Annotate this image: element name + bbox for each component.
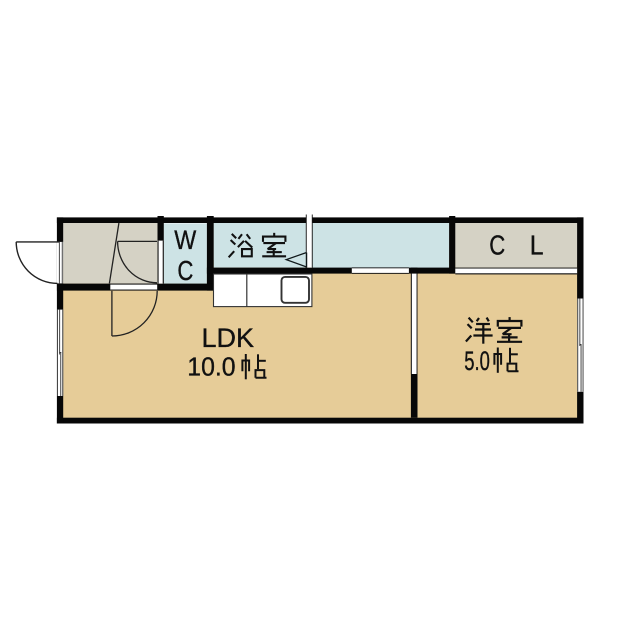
svg-text:W: W: [174, 225, 196, 255]
svg-text:10.0: 10.0: [187, 354, 235, 382]
svg-text:C: C: [177, 255, 193, 286]
svg-text:LDK: LDK: [201, 323, 254, 353]
svg-text:L: L: [530, 230, 544, 261]
svg-text:C: C: [489, 230, 505, 261]
svg-text:5.0: 5.0: [464, 346, 490, 376]
